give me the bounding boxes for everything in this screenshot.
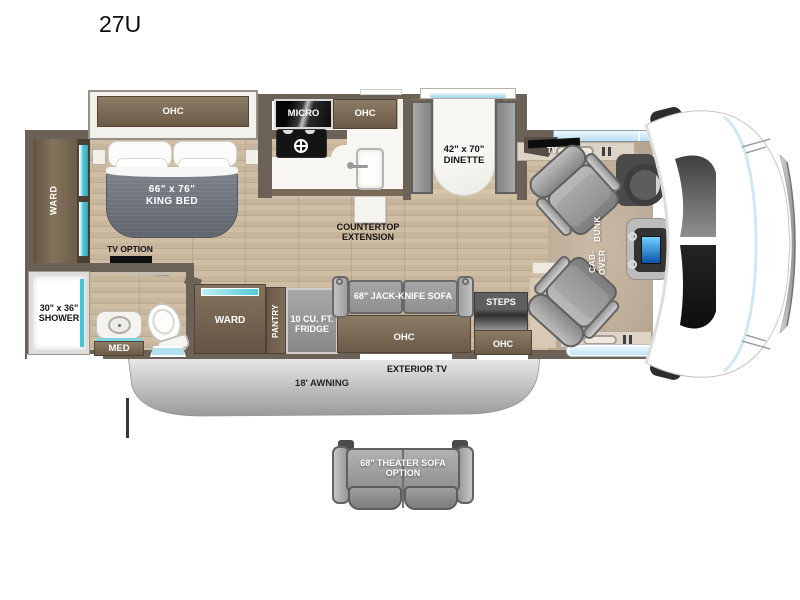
faucet-icon xyxy=(350,165,368,168)
kitchen-ohc-label: OHC xyxy=(334,109,396,120)
cooktop-grate xyxy=(305,130,315,134)
steps: STEPS xyxy=(474,292,528,332)
floorplan-27u: 27U 68" THEATER SOFAOPTION EXTERIOR TV 1… xyxy=(0,0,800,600)
nightstand xyxy=(245,149,259,165)
bath-mat xyxy=(150,346,186,357)
theater-sofa-seat xyxy=(348,486,402,510)
wall-dinette-left xyxy=(403,94,411,200)
bed-sheet-fold xyxy=(106,167,238,177)
shower-glass xyxy=(80,279,84,347)
hall-ward-label: WARD xyxy=(195,315,265,327)
kitchen-window xyxy=(360,89,402,95)
microwave: MICRO xyxy=(274,99,333,129)
kitchen-cabinet-face xyxy=(272,189,403,196)
med-label: MED xyxy=(95,344,143,355)
bath-sink-counter xyxy=(96,311,142,339)
dinette-bench xyxy=(495,101,517,194)
bedroom-ohc-cabinet: OHC xyxy=(97,96,249,127)
console-cupholder xyxy=(628,260,637,269)
sofa-cupholder xyxy=(462,278,469,285)
countertop-extension-label: COUNTERTOPEXTENSION xyxy=(330,222,406,243)
dinette-bench xyxy=(411,101,433,194)
burner-icon xyxy=(294,139,308,153)
page-title: 27U xyxy=(99,11,141,38)
pantry-label: PANTRY xyxy=(268,292,284,350)
ward-mirror-strip xyxy=(79,202,88,256)
hall-ward: WARD xyxy=(194,284,266,354)
wall-gap xyxy=(360,354,452,360)
theater-sofa-label: 68" THEATER SOFAOPTION xyxy=(342,458,464,479)
jack-knife-sofa-label: 68" JACK-KNIFE SOFA xyxy=(340,291,466,301)
tv-option-tv xyxy=(110,256,152,263)
kitchen-ohc-cabinet: OHC xyxy=(333,99,397,129)
fridge-label: 10 CU. FT.FRIDGE xyxy=(288,314,336,335)
ward-window-strip xyxy=(201,288,259,296)
awning-label: 18' AWNING xyxy=(284,379,360,390)
bedroom-ward-front xyxy=(78,139,90,265)
theater-sofa-option: 68" THEATER SOFAOPTION xyxy=(332,440,474,512)
cooktop-grate xyxy=(283,130,293,134)
cab-over-bunk-label: CAB-OVERBUNK xyxy=(584,216,610,282)
kitchen-sink xyxy=(356,148,384,190)
fridge: 10 CU. FT.FRIDGE xyxy=(286,288,338,354)
sofa-ohc-label: OHC xyxy=(338,333,470,344)
pantry: PANTRY xyxy=(266,287,286,354)
dinette-table: 42" x 70"DINETTE xyxy=(433,96,495,196)
med-cabinet: MED xyxy=(94,341,144,356)
shower: 30" x 36"SHOWER xyxy=(29,272,89,354)
dinette-label: 42" x 70"DINETTE xyxy=(434,145,494,167)
nightstand xyxy=(92,149,106,165)
countertop-extension-block xyxy=(354,196,386,223)
bath-sink-drain xyxy=(118,324,121,327)
dinette-window-glass xyxy=(430,93,506,98)
dinette-window xyxy=(420,88,516,99)
wall-bed-bath-divider xyxy=(25,263,194,272)
king-bed-label: 66" x 76"KING BED xyxy=(106,184,238,207)
ward-mirror-strip xyxy=(79,145,88,196)
console-cupholder xyxy=(628,232,637,241)
awning-support xyxy=(126,398,129,438)
wall-kitchen-left xyxy=(258,94,272,198)
bedroom-ward-label: WARD xyxy=(44,168,64,232)
door-hinge-icon xyxy=(629,335,632,344)
sofa-cupholder xyxy=(336,278,343,285)
steps-ohc-cabinet: OHC xyxy=(474,330,532,355)
microwave-label: MICRO xyxy=(276,109,331,120)
door-hinge-icon xyxy=(602,147,605,156)
steps-ohc-label: OHC xyxy=(475,339,531,349)
exterior-tv-label: EXTERIOR TV xyxy=(384,364,450,374)
theater-sofa-seat xyxy=(404,486,458,510)
windshield-glass xyxy=(680,245,716,329)
jack-knife-sofa: 68" JACK-KNIFE SOFA xyxy=(332,276,474,321)
shower-label: 30" x 36"SHOWER xyxy=(39,303,80,324)
door-hinge-icon xyxy=(608,147,611,156)
wall-gap xyxy=(27,354,103,360)
bedroom-ohc-label: OHC xyxy=(98,107,248,118)
tv-option-label: TV OPTION xyxy=(100,245,160,255)
door-hinge-icon xyxy=(623,335,626,344)
cooktop xyxy=(276,129,327,158)
truck-cab-front xyxy=(638,93,798,395)
